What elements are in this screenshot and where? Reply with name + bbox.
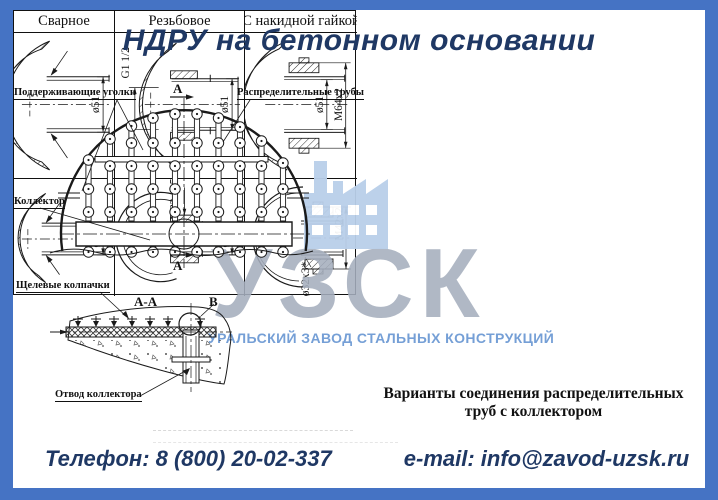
detail-mark-b: В	[209, 294, 218, 310]
section-view-drawing	[13, 275, 373, 435]
label-supporting-angles: Поддерживающие уголки	[14, 87, 136, 100]
table-caption-line2: труб с коллектором	[362, 403, 705, 421]
phone-number: Телефон: 8 (800) 20-02-337	[45, 446, 332, 472]
footer-contacts: Телефон: 8 (800) 20-02-337 e-mail: info@…	[13, 446, 705, 472]
flyer-page: УЗСК УРАЛЬСКИЙ ЗАВОД СТАЛЬНЫХ КОНСТРУКЦИ…	[13, 10, 705, 488]
section-title-a-a: А-А	[134, 294, 157, 310]
email-address: e-mail: info@zavod-uzsk.ru	[404, 446, 689, 472]
plan-view-drawing	[13, 80, 373, 280]
label-slot-caps: Щелевые колпачки	[16, 280, 110, 293]
table-caption: Варианты соединения распределительных тр…	[362, 385, 705, 421]
section-mark-a-top: А	[173, 81, 182, 97]
label-collector-outlet: Отвод коллектора	[55, 389, 142, 402]
table-caption-line1: Варианты соединения распределительных	[362, 385, 705, 403]
label-distribution-pipes: Распределительные трубы	[237, 87, 364, 100]
section-mark-a-bottom: А	[173, 258, 182, 274]
label-collector: Коллектор	[14, 196, 65, 209]
faded-artifact-line-2	[153, 442, 398, 443]
page-title: НДРУ на бетонном основании	[13, 24, 705, 58]
